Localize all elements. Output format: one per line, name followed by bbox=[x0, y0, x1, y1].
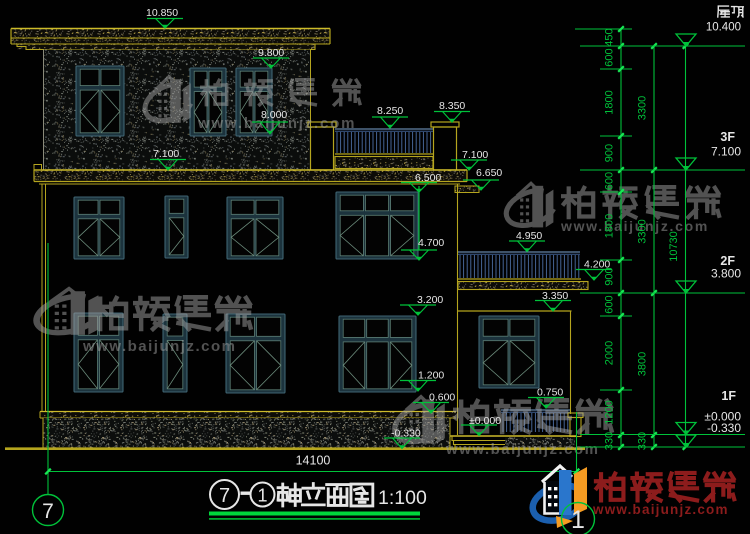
svg-text:8.350: 8.350 bbox=[439, 100, 465, 112]
svg-text:1200: 1200 bbox=[604, 400, 616, 424]
svg-text:±0.000: ±0.000 bbox=[469, 415, 501, 427]
svg-text:9.800: 9.800 bbox=[258, 47, 284, 59]
svg-text:4.950: 4.950 bbox=[516, 230, 542, 242]
svg-text:600: 600 bbox=[604, 48, 616, 66]
svg-text:7.100: 7.100 bbox=[711, 145, 741, 159]
svg-text:600: 600 bbox=[604, 172, 616, 190]
svg-text:3.800: 3.800 bbox=[711, 267, 741, 281]
svg-text:10730: 10730 bbox=[668, 231, 680, 262]
svg-text:6.500: 6.500 bbox=[415, 172, 441, 184]
svg-text:2000: 2000 bbox=[604, 341, 616, 365]
svg-text:3300: 3300 bbox=[637, 219, 649, 243]
svg-text:900: 900 bbox=[604, 144, 616, 162]
svg-text:450: 450 bbox=[604, 28, 616, 46]
svg-text:900: 900 bbox=[604, 267, 616, 285]
svg-text:3800: 3800 bbox=[637, 352, 649, 376]
svg-text:1: 1 bbox=[257, 486, 267, 506]
svg-text:7: 7 bbox=[219, 485, 230, 507]
svg-text:8.250: 8.250 bbox=[377, 105, 403, 117]
svg-text:1: 1 bbox=[571, 506, 585, 534]
svg-text:1.200: 1.200 bbox=[418, 370, 444, 382]
svg-text:www.baijunjz.com: www.baijunjz.com bbox=[82, 338, 236, 355]
svg-text:3.350: 3.350 bbox=[542, 290, 568, 302]
svg-text:10.850: 10.850 bbox=[146, 7, 178, 19]
svg-text:6.650: 6.650 bbox=[476, 167, 502, 179]
svg-text:0.600: 0.600 bbox=[429, 392, 455, 404]
svg-text:7: 7 bbox=[42, 500, 54, 523]
svg-text:7.100: 7.100 bbox=[462, 149, 488, 161]
svg-text:www.baijunjz.com: www.baijunjz.com bbox=[592, 502, 729, 517]
svg-text:10.400: 10.400 bbox=[706, 22, 741, 34]
svg-text:-0.330: -0.330 bbox=[707, 421, 741, 435]
svg-text:1F: 1F bbox=[721, 389, 736, 403]
svg-text:7.100: 7.100 bbox=[153, 148, 179, 160]
svg-text:3F: 3F bbox=[720, 130, 735, 144]
svg-text:3300: 3300 bbox=[637, 96, 649, 120]
svg-text:8.000: 8.000 bbox=[261, 109, 287, 121]
svg-text:600: 600 bbox=[604, 295, 616, 313]
svg-text:1800: 1800 bbox=[604, 90, 616, 114]
svg-text:3.200: 3.200 bbox=[417, 294, 443, 306]
svg-text:1:100: 1:100 bbox=[378, 487, 427, 509]
svg-text:14100: 14100 bbox=[296, 454, 331, 468]
svg-text:0.750: 0.750 bbox=[537, 387, 563, 399]
svg-text:4.700: 4.700 bbox=[418, 237, 444, 249]
svg-text:www.baijunjz.com: www.baijunjz.com bbox=[560, 218, 709, 234]
svg-text:1800: 1800 bbox=[604, 214, 616, 238]
svg-text:-0.330: -0.330 bbox=[391, 428, 421, 440]
